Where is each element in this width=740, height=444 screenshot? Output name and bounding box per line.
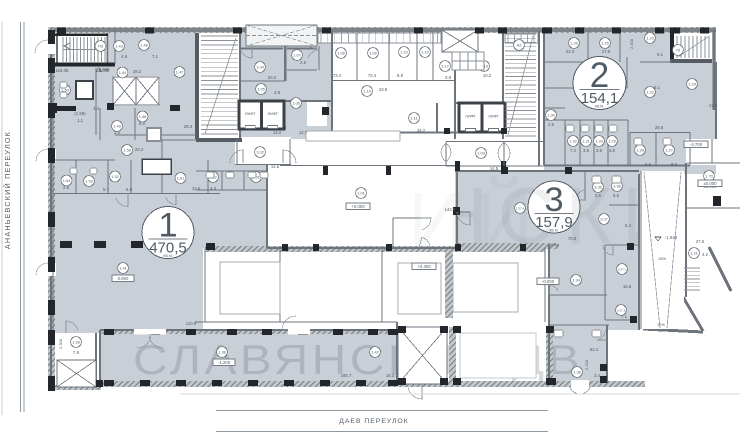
svg-text:1.05: 1.05 xyxy=(257,86,265,91)
svg-text:ЛИФТ: ЛИФТ xyxy=(488,114,499,119)
svg-text:9.1: 9.1 xyxy=(657,52,664,57)
svg-text:1.11: 1.11 xyxy=(410,115,417,120)
svg-text:1.48: 1.48 xyxy=(139,114,147,119)
svg-text:8.0: 8.0 xyxy=(139,121,146,126)
svg-text:118.05: 118.05 xyxy=(56,68,69,73)
svg-text:10%: 10% xyxy=(657,322,665,327)
svg-text:2.300: 2.300 xyxy=(58,338,63,349)
svg-text:1.46: 1.46 xyxy=(140,42,148,47)
svg-text:ЛИФТ: ЛИФТ xyxy=(267,111,278,116)
svg-text:-1.200: -1.200 xyxy=(218,360,231,365)
svg-text:7.1: 7.1 xyxy=(152,54,159,59)
svg-text:1.34: 1.34 xyxy=(572,277,580,282)
svg-text:1.08: 1.08 xyxy=(337,50,345,55)
svg-text:16.6: 16.6 xyxy=(623,284,632,289)
svg-text:1.44: 1.44 xyxy=(119,70,127,75)
svg-text:2.5: 2.5 xyxy=(300,60,307,65)
svg-text:1.03: 1.03 xyxy=(477,150,485,155)
svg-text:КВ.М.: КВ.М. xyxy=(164,254,173,258)
svg-text:14.5: 14.5 xyxy=(271,164,280,169)
svg-text:1.14: 1.14 xyxy=(363,88,371,93)
svg-text:180.7: 180.7 xyxy=(341,373,352,378)
svg-text:144.9: 144.9 xyxy=(445,207,456,212)
svg-text:3.6: 3.6 xyxy=(609,148,616,153)
svg-text:1.23: 1.23 xyxy=(646,35,654,40)
svg-text:КВ.М.: КВ.М. xyxy=(595,105,604,109)
svg-text:9.1: 9.1 xyxy=(654,85,661,90)
svg-text:1.47: 1.47 xyxy=(176,69,184,74)
svg-text:3.6: 3.6 xyxy=(596,148,603,153)
svg-text:1.10: 1.10 xyxy=(400,49,408,54)
svg-text:1.30: 1.30 xyxy=(547,112,555,117)
svg-text:28.2: 28.2 xyxy=(133,69,142,74)
svg-text:53.2: 53.2 xyxy=(268,75,277,80)
svg-text:1.15: 1.15 xyxy=(421,49,429,54)
svg-text:12.6: 12.6 xyxy=(192,186,201,191)
svg-text:ДАЕВ ПЕРЕУЛОК: ДАЕВ ПЕРЕУЛОК xyxy=(339,418,408,425)
svg-text:1.02: 1.02 xyxy=(256,149,264,154)
svg-text:2.300: 2.300 xyxy=(629,38,634,49)
svg-text:17.8: 17.8 xyxy=(709,103,718,108)
svg-text:4.8: 4.8 xyxy=(274,90,281,95)
svg-text:72.4: 72.4 xyxy=(368,73,377,78)
svg-text:1.25: 1.25 xyxy=(601,40,609,45)
svg-text:2.5: 2.5 xyxy=(548,122,555,127)
svg-text:ЛИФТ: ЛИФТ xyxy=(465,114,476,119)
svg-text:4.3: 4.3 xyxy=(210,186,217,191)
svg-text:1.58: 1.58 xyxy=(123,147,131,152)
svg-text:14.2: 14.2 xyxy=(273,130,282,135)
svg-text:-1.940: -1.940 xyxy=(665,235,678,240)
svg-text:+0.300: +0.300 xyxy=(417,264,431,269)
svg-text:4.2: 4.2 xyxy=(702,252,709,257)
svg-text:1.54: 1.54 xyxy=(63,178,71,183)
svg-text:62.4: 62.4 xyxy=(590,347,599,352)
svg-text:3.8: 3.8 xyxy=(445,75,452,80)
svg-text:1.22: 1.22 xyxy=(646,89,654,94)
svg-text:±0.000: ±0.000 xyxy=(703,181,717,186)
svg-text:3.4: 3.4 xyxy=(93,106,100,111)
svg-text:-4.700: -4.700 xyxy=(690,142,703,147)
svg-text:1.04: 1.04 xyxy=(256,64,264,69)
svg-text:1.36: 1.36 xyxy=(573,369,581,374)
svg-text:1.27: 1.27 xyxy=(665,147,673,152)
svg-text:1.43: 1.43 xyxy=(115,43,123,48)
svg-text:1.31: 1.31 xyxy=(582,138,590,143)
svg-text:1.39: 1.39 xyxy=(72,339,80,344)
svg-text:34.2: 34.2 xyxy=(417,128,426,133)
svg-text:-0.000: -0.000 xyxy=(542,279,555,284)
svg-text:14.5: 14.5 xyxy=(490,166,499,171)
svg-text:А2: А2 xyxy=(517,42,522,47)
svg-text:28.6: 28.6 xyxy=(655,125,664,130)
svg-text:8.8: 8.8 xyxy=(397,73,404,78)
svg-text:5.7: 5.7 xyxy=(103,187,110,192)
svg-text:1.07: 1.07 xyxy=(293,52,301,57)
svg-text:+0.000: +0.000 xyxy=(351,204,365,209)
svg-text:1.09: 1.09 xyxy=(369,50,377,55)
svg-text:27.5: 27.5 xyxy=(696,239,705,244)
svg-text:3.4: 3.4 xyxy=(594,373,601,378)
svg-text:0.800: 0.800 xyxy=(118,276,129,281)
svg-text:18.3: 18.3 xyxy=(386,373,395,378)
svg-text:1.26: 1.26 xyxy=(570,40,578,45)
svg-text:1.41: 1.41 xyxy=(119,265,127,270)
svg-text:3.2: 3.2 xyxy=(114,130,121,135)
svg-text:1.70: 1.70 xyxy=(705,173,713,178)
svg-text:3.37.3: 3.37.3 xyxy=(617,308,626,312)
svg-text:1.28: 1.28 xyxy=(636,147,644,152)
svg-text:3.6: 3.6 xyxy=(583,148,590,153)
svg-text:27.8: 27.8 xyxy=(602,49,611,54)
svg-text:П3: П3 xyxy=(98,43,103,48)
svg-text:6.6: 6.6 xyxy=(126,187,133,192)
svg-text:1.52: 1.52 xyxy=(111,174,119,179)
svg-text:2.5: 2.5 xyxy=(63,185,70,190)
svg-text:8.9: 8.9 xyxy=(671,162,678,167)
svg-text:110.9: 110.9 xyxy=(186,321,197,326)
svg-text:НСКИЙ: НСКИЙ xyxy=(430,170,740,260)
svg-text:ЛИФТ: ЛИФТ xyxy=(245,111,256,116)
svg-text:7.2: 7.2 xyxy=(570,148,577,153)
svg-text:7.9: 7.9 xyxy=(73,350,80,355)
svg-text:1.29: 1.29 xyxy=(608,138,616,143)
svg-text:1.49: 1.49 xyxy=(113,123,121,128)
svg-text:4.9: 4.9 xyxy=(121,54,128,59)
svg-text:28.3: 28.3 xyxy=(184,124,193,129)
svg-text:1.1: 1.1 xyxy=(77,118,84,123)
svg-text:22.4: 22.4 xyxy=(135,147,144,152)
svg-text:23.8: 23.8 xyxy=(379,87,388,92)
svg-text:1.24: 1.24 xyxy=(688,81,696,86)
svg-text:1.21: 1.21 xyxy=(690,250,698,255)
svg-text:(1.59): (1.59) xyxy=(74,111,86,116)
svg-text:1.01: 1.01 xyxy=(357,190,365,195)
svg-text:3.37.2: 3.37.2 xyxy=(618,267,627,271)
svg-text:22.3: 22.3 xyxy=(566,49,575,54)
svg-text:18%: 18% xyxy=(658,256,666,261)
svg-text:73.4: 73.4 xyxy=(333,73,342,78)
svg-text:1.33: 1.33 xyxy=(595,138,603,143)
svg-text:1.38: 1.38 xyxy=(218,349,226,354)
svg-text:7.1: 7.1 xyxy=(621,314,628,319)
svg-text:1.51: 1.51 xyxy=(177,175,185,180)
svg-text:12.7: 12.7 xyxy=(299,130,308,135)
svg-text:10.2: 10.2 xyxy=(483,73,492,78)
svg-text:2.200: 2.200 xyxy=(584,359,589,370)
svg-text:1.42: 1.42 xyxy=(371,349,379,354)
svg-text:1.53: 1.53 xyxy=(85,178,93,183)
svg-text:7б: 7б xyxy=(676,47,681,52)
svg-text:1.06: 1.06 xyxy=(292,100,300,105)
svg-text:АНАНЬЕВСКИЙ ПЕРЕУЛОК: АНАНЬЕВСКИЙ ПЕРЕУЛОК xyxy=(3,131,12,249)
svg-text:6.6: 6.6 xyxy=(645,162,652,167)
svg-text:1.17: 1.17 xyxy=(441,63,449,68)
svg-text:1.32: 1.32 xyxy=(569,138,577,143)
